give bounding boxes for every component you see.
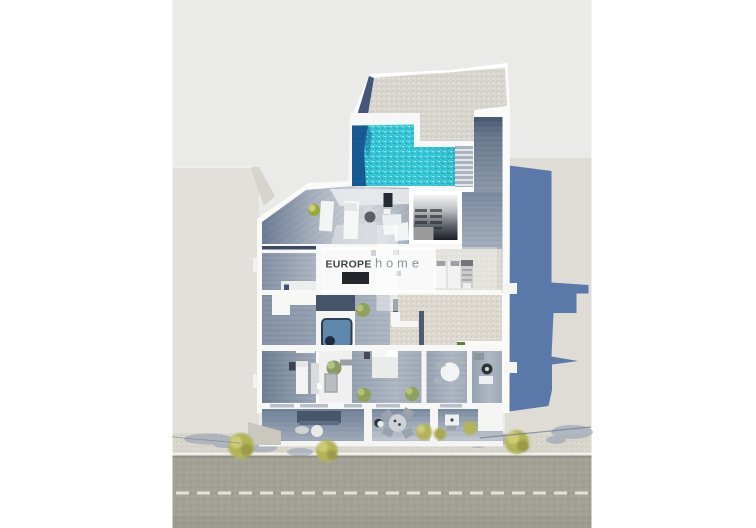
svg-text:EUROPE: EUROPE xyxy=(326,259,372,271)
svg-text:home: home xyxy=(375,256,423,271)
